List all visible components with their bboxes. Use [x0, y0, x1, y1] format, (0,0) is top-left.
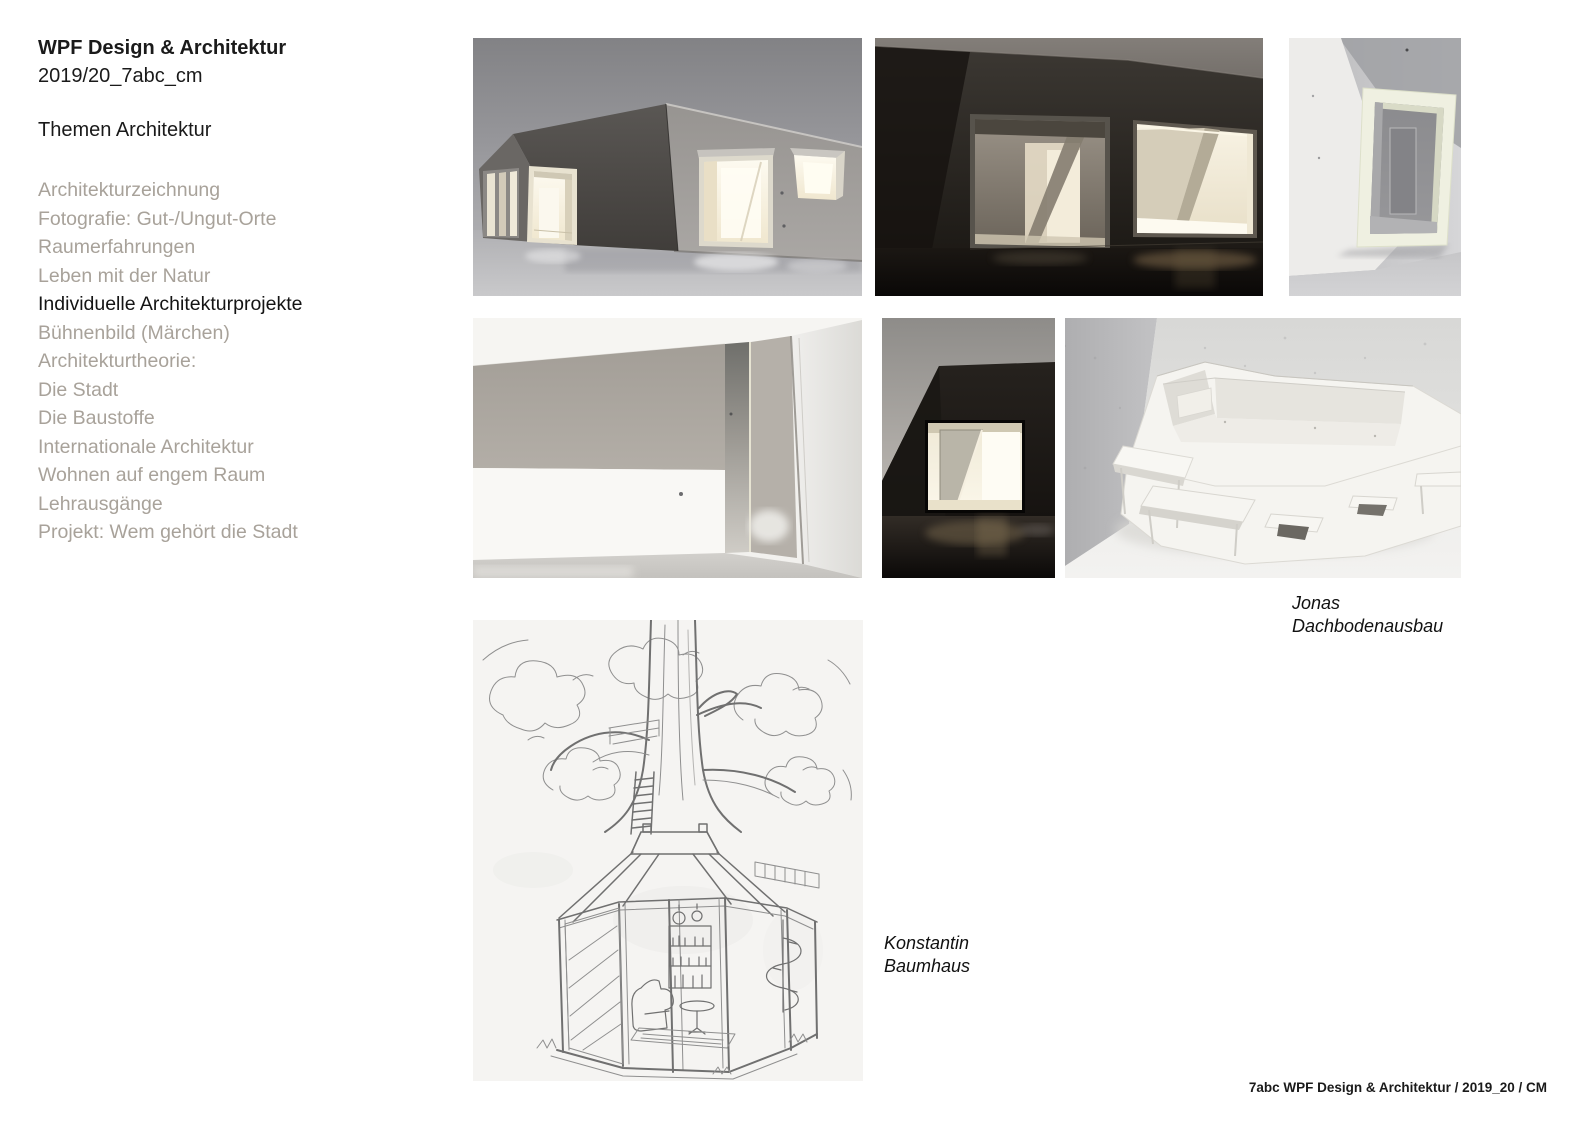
menu-item-projekt-wem-gehoert-die-stadt[interactable]: Projekt: Wem gehört die Stadt: [38, 518, 302, 547]
menu-item-die-stadt[interactable]: Die Stadt: [38, 376, 302, 405]
footer-credit: 7abc WPF Design & Architektur / 2019_20 …: [1249, 1080, 1547, 1095]
page-title: WPF Design & Architektur: [38, 34, 286, 62]
caption-jonas: Jonas Dachbodenausbau: [1292, 592, 1443, 637]
photo-model-window-frame: [1289, 38, 1461, 296]
page-subtitle: 2019/20_7abc_cm: [38, 62, 286, 90]
photo-model-dark-window: [882, 318, 1055, 578]
photo-model-night-closeup: [875, 38, 1263, 296]
slide-page: WPF Design & Architektur 2019/20_7abc_cm…: [0, 0, 1587, 1123]
menu-item-architekturtheorie[interactable]: Architekturtheorie:: [38, 347, 302, 376]
menu-item-raumerfahrungen[interactable]: Raumerfahrungen: [38, 233, 302, 262]
sketch-treehouse: [473, 620, 863, 1081]
menu-item-buehnenbild[interactable]: Bühnenbild (Märchen): [38, 319, 302, 348]
menu-item-wohnen-auf-engem-raum[interactable]: Wohnen auf engem Raum: [38, 461, 302, 490]
header: WPF Design & Architektur 2019/20_7abc_cm: [38, 34, 286, 90]
caption-jonas-name: Jonas: [1292, 592, 1443, 615]
menu-item-internationale-architektur[interactable]: Internationale Architektur: [38, 433, 302, 462]
menu-item-leben-mit-der-natur[interactable]: Leben mit der Natur: [38, 262, 302, 291]
themes-menu: Architekturzeichnung Fotografie: Gut-/Un…: [38, 176, 302, 547]
menu-item-die-baustoffe[interactable]: Die Baustoffe: [38, 404, 302, 433]
photo-model-exterior-wide: [473, 38, 862, 296]
menu-item-lehrausgaenge[interactable]: Lehrausgänge: [38, 490, 302, 519]
menu-item-fotografie[interactable]: Fotografie: Gut-/Ungut-Orte: [38, 205, 302, 234]
menu-item-architekturzeichnung[interactable]: Architekturzeichnung: [38, 176, 302, 205]
photo-model-interior: [473, 318, 862, 578]
caption-jonas-project: Dachbodenausbau: [1292, 615, 1443, 638]
caption-konstantin-project: Baumhaus: [884, 955, 970, 978]
caption-konstantin-name: Konstantin: [884, 932, 970, 955]
photo-model-white-attic: [1065, 318, 1461, 578]
section-label: Themen Architektur: [38, 119, 211, 142]
menu-item-individuelle-architekturprojekte[interactable]: Individuelle Architekturprojekte: [38, 290, 302, 319]
caption-konstantin: Konstantin Baumhaus: [884, 932, 970, 977]
